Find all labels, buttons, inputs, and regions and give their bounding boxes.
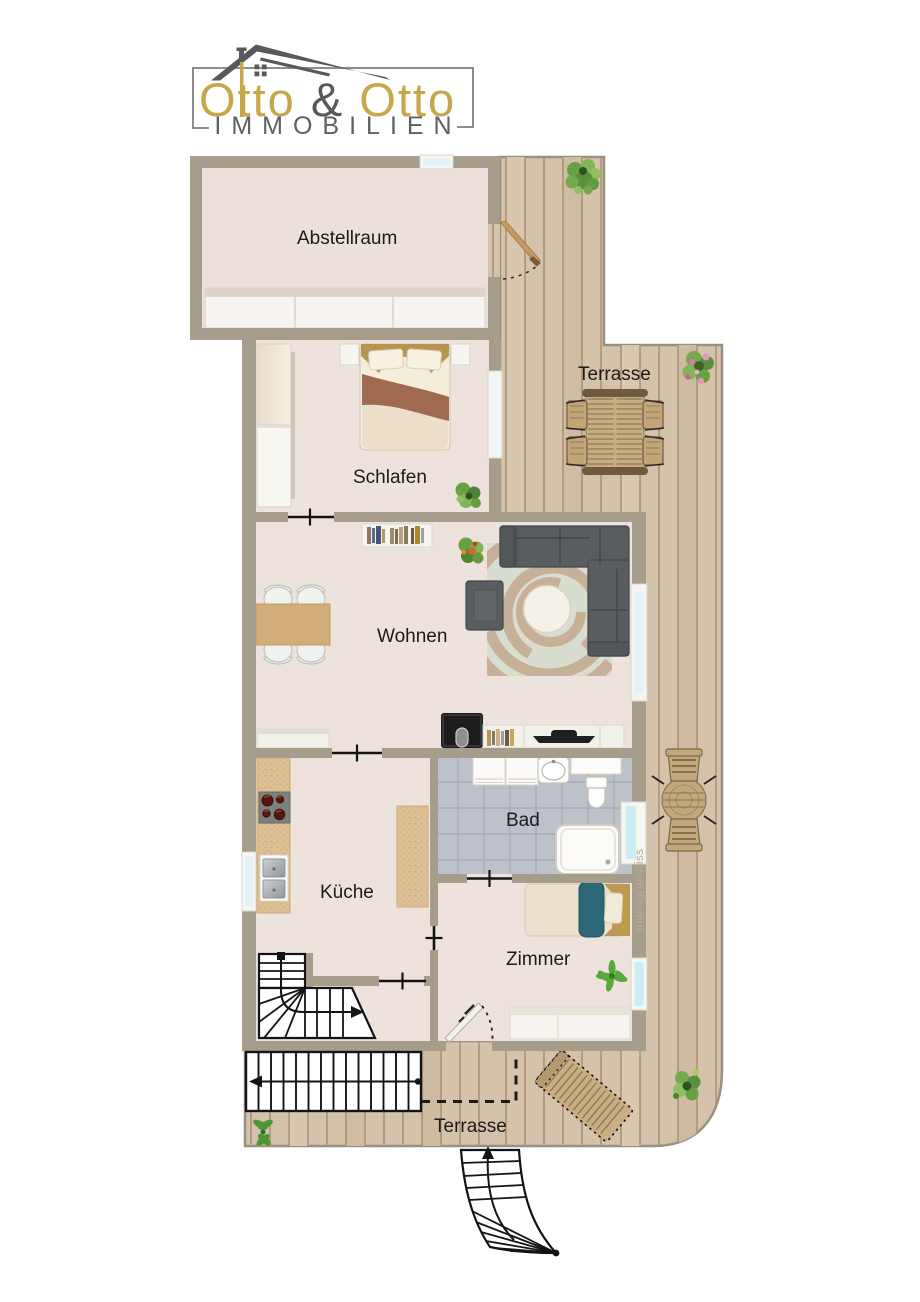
svg-text:Terrasse: Terrasse [578,364,651,385]
svg-text:IMMOBILIEN: IMMOBILIEN [214,112,461,140]
svg-text:Abstellraum: Abstellraum [297,228,397,249]
svg-text:Wohnen: Wohnen [377,626,447,647]
svg-text:Terrasse: Terrasse [434,1116,507,1137]
svg-text:Bad: Bad [506,810,540,831]
svg-text:Immogrundriss: Immogrundriss [634,848,646,931]
svg-text:Schlafen: Schlafen [353,467,427,488]
svg-text:Zimmer: Zimmer [506,949,571,970]
svg-text:Küche: Küche [320,882,374,903]
